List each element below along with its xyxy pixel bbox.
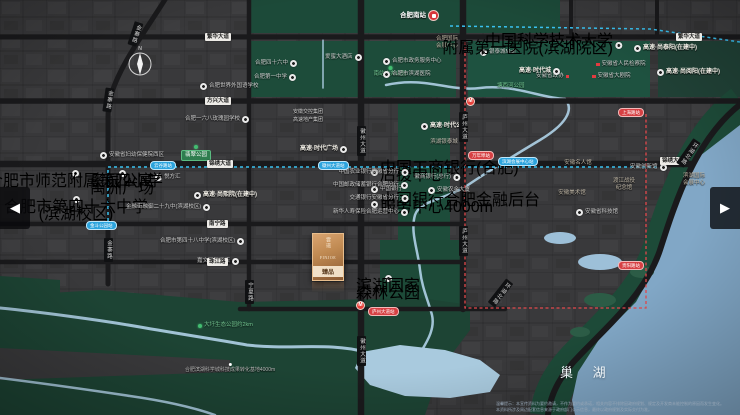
park-dot-icon	[198, 324, 202, 328]
developer-brand: 高速地产集团	[293, 117, 323, 124]
poi-icon	[428, 187, 435, 194]
label-text: 庐州大道	[460, 114, 467, 140]
poi-label: 中国邮政储蓄银行合肥分行	[333, 182, 408, 189]
poi-distance-label: 合肥滨湖科学城科技成果转化基地4000m	[185, 363, 275, 374]
label-text: 安徽省人民检察院	[602, 61, 646, 68]
label-text: 合肥第一中学	[254, 74, 287, 81]
label-text: 安徽美术馆	[558, 190, 586, 197]
road-name-label: 宁夏路	[245, 280, 254, 304]
landmark-label: 安徽美术馆	[558, 190, 586, 197]
label-text: 中国科学技术大学附属第一医院(滨湖院区)	[442, 38, 613, 52]
label-text: 方兴大道	[207, 97, 229, 105]
label-text: 合肥四十六中	[255, 60, 288, 67]
label-text: 南宁路	[209, 220, 226, 228]
poi-label: 安徽省妇幼保健院西区	[100, 152, 164, 159]
landmark-label: 安徽名人馆	[564, 160, 592, 167]
poi-label: 合肥第一中学	[254, 74, 296, 81]
road-name-label: 繁华大道	[205, 33, 231, 41]
label-text: 锦绣大道	[209, 160, 231, 168]
poi-label: 交通银行安徽省分行	[349, 195, 408, 202]
poi-icon	[100, 152, 107, 159]
label-text: 中国农业银行安徽省分行	[338, 169, 399, 176]
road-name-label: 锦绣大道	[207, 160, 233, 168]
label-text: 合肥市滨湖医院	[392, 71, 431, 78]
road-name-label: 南宁路	[207, 220, 228, 228]
poi-icon	[340, 146, 347, 153]
label-text: 高速地产集团	[293, 117, 323, 124]
label-text: 安徽省大剧院	[598, 73, 631, 80]
poi-icon	[453, 174, 460, 181]
poi-label: 爱蜜大酒店	[325, 54, 362, 61]
label-text: 滨湖银泰城	[430, 139, 458, 146]
poi-icon	[401, 169, 408, 176]
label-text: 金融街融御二十九中(滨湖校区)	[126, 204, 201, 211]
poi-icon	[290, 60, 297, 67]
project-logo-reflection	[312, 282, 344, 292]
label-text: 上海路站	[618, 108, 644, 117]
label-text: 万年埠站	[468, 151, 494, 160]
poi-label: 合肥市滨湖医院	[383, 71, 431, 78]
label-text: 新华人寿保险合肥运营中心	[333, 209, 399, 216]
label-text: 珠江路	[209, 258, 226, 266]
planned-station-badge: 庐州大道站	[368, 307, 399, 316]
map-disclaimer-line2: 本资料所涉及周边配套信息来源于政府部门公示信息，最终以政府规划及实际交付为准。	[496, 407, 738, 412]
poi-icon	[242, 116, 249, 123]
label-text: 高速·尚阅阳(在建中)	[666, 69, 720, 76]
poi-dot-icon	[566, 75, 570, 79]
poi-dot-icon	[596, 63, 600, 67]
label-text: 合肥市政务服务中心	[392, 58, 442, 65]
gov-poi-label: 安徽省大剧院	[592, 73, 631, 80]
road-name-label: 金寨路	[104, 238, 113, 262]
road-name-label: 庐州大道	[459, 112, 468, 142]
label-text: 徽州大道站	[318, 161, 349, 170]
railway-station-label: 合肥南站	[400, 10, 439, 21]
poi-icon	[657, 69, 664, 76]
project-logo: 雲璟 FINJOE 臻品	[312, 233, 344, 281]
carousel-next-button[interactable]: ▶	[710, 187, 740, 229]
label-text: 云谷路站	[150, 161, 176, 170]
label-text: 徽州大道	[358, 128, 365, 154]
park-dot-icon	[194, 145, 198, 149]
label-text: 安徽农金大厦	[437, 187, 470, 194]
label-text: 安徽名人馆	[564, 160, 592, 167]
label-text: 高速·时代广场	[300, 146, 338, 153]
label-text: 高速·时代城	[519, 68, 551, 75]
road-name-label: 庐州大道	[459, 226, 468, 256]
label-text: 滨湖国家森林公园	[356, 283, 420, 297]
poi-label: 合肥四十六中	[255, 60, 297, 67]
poi-label: 合肥市第四十八中学(滨湖校区)	[160, 238, 244, 245]
project-label: 高速·尚阅阳(在建中)	[657, 69, 720, 76]
poi-label: 安徽省科技馆	[576, 209, 618, 216]
poi-icon	[401, 195, 408, 202]
label-text: 合肥南站	[400, 12, 426, 19]
label-text: 安徽交控集团	[293, 109, 323, 116]
metro-station-badge: 云谷路站	[150, 161, 176, 170]
label-text: 合肥滨湖科学城科技成果转化基地4000m	[185, 367, 275, 374]
label-text: 悦方汇	[164, 174, 181, 181]
park-dot-icon	[388, 66, 392, 70]
metro-station-badge: 金斗公园站	[86, 221, 117, 230]
label-text: 塘西河公园	[497, 83, 525, 90]
poi-label: 安徽创新馆	[630, 164, 667, 171]
project-label: 高速·时代广场	[300, 146, 347, 153]
location-map: N 雲璟 FINJOE 臻品 巢 湖 温馨提示：本宣传资料为要约邀请，不作为要约…	[0, 0, 740, 415]
poi-icon	[576, 209, 583, 216]
label-text: 庐州大道站	[368, 307, 399, 316]
carousel-prev-button[interactable]: ◀	[0, 187, 30, 229]
planned-station-badge: 万年埠站	[468, 151, 494, 160]
poi-label: 安徽农金大厦	[428, 187, 470, 194]
landmark-label: 滨湖国际会展中心	[683, 173, 705, 187]
poi-label: 中国科学技术大学附属第一医院(滨湖院区)	[442, 38, 622, 52]
metro-logo-badge: M	[466, 97, 475, 106]
road-name-label: 珠江路	[207, 258, 228, 266]
poi-icon	[194, 192, 201, 199]
landmark-label: 渡江战役纪念馆	[613, 178, 635, 192]
label-text: 庐州大道	[460, 228, 467, 254]
label-text: 爱蜜大酒店	[325, 54, 353, 61]
poi-label: 滨湖国家森林公园	[356, 275, 420, 297]
poi-icon	[401, 182, 408, 189]
right-arrow-icon: ▶	[720, 200, 730, 216]
poi-icon	[615, 42, 622, 49]
poi-icon	[634, 45, 641, 52]
poi-label: 合肥一六八玫瑰园学校	[185, 116, 249, 123]
road-name-label: 繁华大道	[676, 33, 702, 41]
park-label: 塘西河公园	[497, 83, 525, 90]
poi-dot-icon	[592, 75, 596, 79]
label-text: 宁夏路	[246, 282, 253, 302]
road-name-label: 徽州大道	[357, 126, 366, 156]
label-text: 合肥世界外国语学校	[209, 83, 259, 90]
label-text: 合肥市第四十八中学(滨湖校区)	[160, 238, 235, 245]
label-text: 徽商银行(总行)	[414, 174, 451, 181]
road-name-label: 方兴大道	[205, 97, 231, 105]
label-text: 金寨路	[104, 90, 114, 110]
poi-icon	[237, 238, 244, 245]
map-disclaimer-line1: 温馨提示：本宣传资料为要约邀请，不作为要约或承诺，相关内容不排除因政府规划、规定…	[496, 401, 738, 406]
project-label: 高速·时代城	[519, 68, 560, 75]
developer-brand: 安徽交控集团	[293, 109, 323, 116]
landmark-label: 滨湖银泰城	[430, 139, 458, 146]
metro-station-badge: 徽州大道站	[318, 161, 349, 170]
park-label: 大圩生态公园约2km	[198, 322, 253, 329]
label-text: 金斗公园站	[86, 221, 117, 230]
poi-icon	[289, 74, 296, 81]
label-text: 中国邮政储蓄银行合肥分行	[333, 182, 399, 189]
poi-dot-icon	[228, 363, 231, 366]
poi-label: 新华人寿保险合肥运营中心	[333, 209, 408, 216]
project-logo-latin-text: FINJOE	[320, 255, 336, 260]
poi-label: 合肥市师范附属第四小学	[0, 170, 163, 185]
label-text: 安徽创新馆	[630, 164, 658, 171]
label-text: 滨湖国际会展中心	[683, 173, 705, 187]
poi-label: 合肥市政务服务中心	[383, 58, 442, 65]
label-text: 交通银行安徽省分行	[349, 195, 399, 202]
label-text: 徽州大道	[358, 338, 365, 364]
label-text: 金寨路	[105, 240, 112, 260]
label-text: 滨湖会展中心站	[498, 157, 538, 166]
project-label: 高速·尚泰阳(在建中)	[634, 45, 697, 52]
poi-label: 合肥世界外国语学校	[200, 83, 259, 90]
metro-station-badge: 滨湖会展中心站	[498, 157, 538, 166]
planned-station-badge: 贵阳路站	[618, 261, 644, 270]
project-logo-seal-text: 臻品	[313, 266, 343, 277]
train-icon	[428, 10, 439, 21]
label-text: 大圩生态公园约2km	[204, 322, 253, 329]
road-name-label: 徽州大道	[357, 336, 366, 366]
label-text: 贵阳路站	[618, 261, 644, 270]
label-text: 安徽省科技馆	[585, 209, 618, 216]
poi-icon	[421, 123, 428, 130]
poi-label: 中国农业银行安徽省分行	[338, 169, 408, 176]
poi-icon	[660, 164, 667, 171]
poi-icon	[553, 68, 560, 75]
label-text: 高速·尚熙院(在建中)	[203, 192, 257, 199]
poi-label: 徽商银行(总行)	[414, 174, 460, 181]
label-text: 高速·尚泰阳(在建中)	[643, 45, 697, 52]
lake-name-label: 巢 湖	[560, 362, 614, 381]
label-text: 繁华大道	[678, 33, 700, 41]
poi-icon	[200, 83, 207, 90]
left-arrow-icon: ◀	[10, 200, 20, 216]
poi-label: 金融街融御二十九中(滨湖校区)	[126, 204, 210, 211]
poi-icon	[383, 58, 390, 65]
poi-icon	[355, 54, 362, 61]
poi-icon	[401, 209, 408, 216]
label-text: 渡江战役纪念馆	[613, 178, 635, 192]
label-text: 合肥一六八玫瑰园学校	[185, 116, 240, 123]
label-text: 繁华大道	[207, 33, 229, 41]
planned-station-badge: 上海路站	[618, 108, 644, 117]
label-text: 安徽省妇幼保健院西区	[109, 152, 164, 159]
poi-icon	[232, 258, 239, 265]
park-sign-label: 翡翠公园	[181, 145, 211, 161]
poi-icon	[383, 71, 390, 78]
poi-icon	[203, 204, 210, 211]
metro-logo-badge: M	[356, 301, 365, 310]
gov-poi-label: 安徽省人民检察院	[596, 61, 646, 68]
project-label: 高速·尚熙院(在建中)	[194, 192, 257, 199]
project-logo-vertical-text: 雲璟	[325, 237, 331, 249]
label-text: 合肥市师范附属第四小学	[0, 178, 163, 185]
